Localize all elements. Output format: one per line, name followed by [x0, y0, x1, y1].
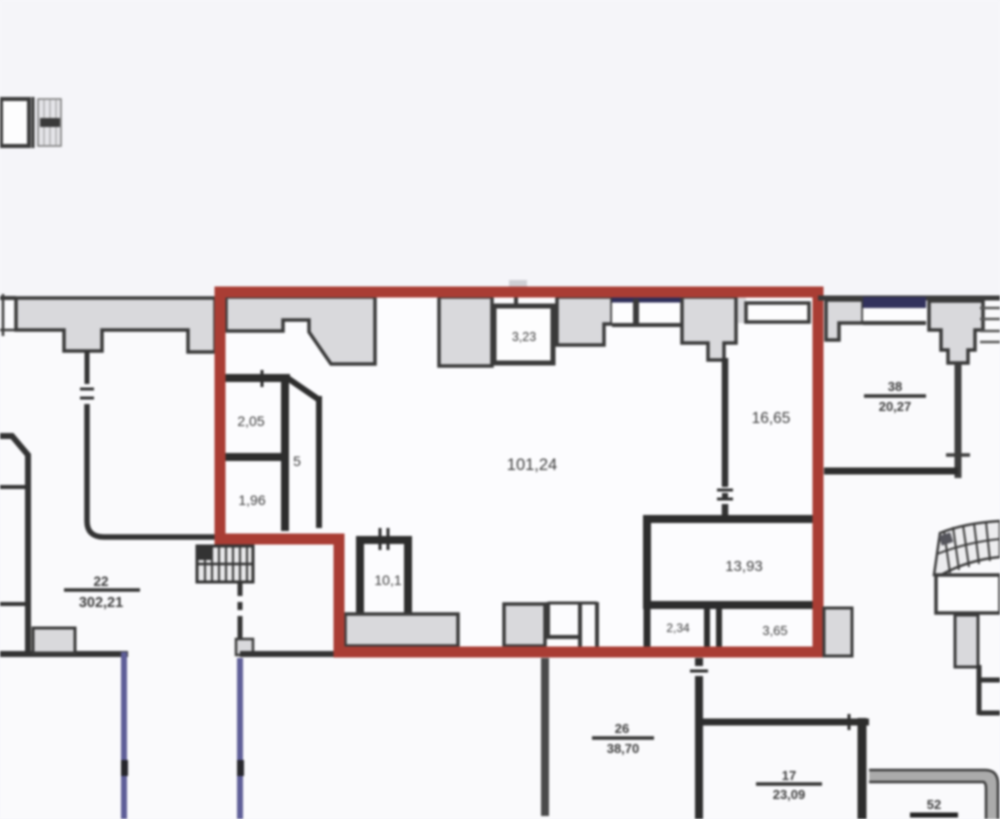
svg-text:20,27: 20,27 — [879, 399, 912, 414]
svg-text:3,65: 3,65 — [762, 623, 787, 638]
svg-text:23,09: 23,09 — [773, 787, 806, 802]
svg-text:101,24: 101,24 — [507, 456, 557, 474]
svg-text:16,65: 16,65 — [752, 410, 791, 427]
svg-text:17: 17 — [782, 768, 796, 783]
svg-text:13,93: 13,93 — [725, 558, 763, 575]
svg-text:5: 5 — [293, 453, 301, 469]
svg-text:52: 52 — [927, 797, 941, 812]
svg-text:38,70: 38,70 — [607, 741, 640, 756]
svg-text:302,21: 302,21 — [79, 595, 123, 611]
svg-text:1,96: 1,96 — [238, 492, 265, 508]
svg-text:10,1: 10,1 — [374, 572, 401, 588]
svg-text:38: 38 — [888, 379, 902, 394]
svg-text:2,34: 2,34 — [666, 621, 690, 635]
svg-text:26: 26 — [615, 721, 629, 736]
svg-text:2,05: 2,05 — [237, 413, 264, 429]
svg-text:22: 22 — [93, 574, 108, 589]
svg-text:3,23: 3,23 — [512, 330, 536, 344]
